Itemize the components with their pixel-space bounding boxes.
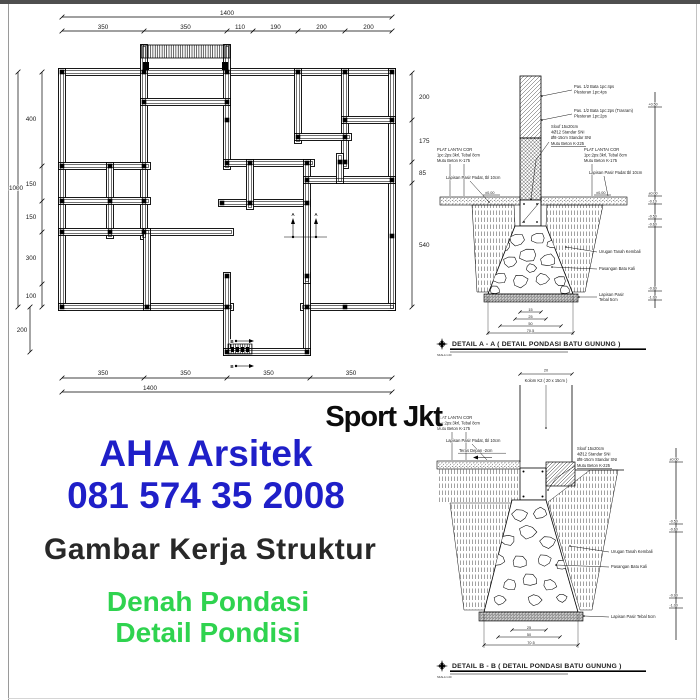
- foundation-plan-drawing: 1400350350110190200200100040015015030010…: [0, 0, 440, 420]
- elevation-label: -0.90: [670, 594, 678, 598]
- dim-label: 150: [26, 181, 37, 188]
- column-point: [305, 161, 310, 166]
- elevation-label: -0.50: [670, 520, 678, 524]
- floor-level-label: ±0.00: [596, 191, 605, 195]
- detail-label: Lapisan Pasir Padat, tbl 10cm: [446, 438, 501, 443]
- icon-star-h: [436, 665, 448, 667]
- column-point: [305, 350, 310, 355]
- column-point: [60, 199, 65, 204]
- dim-label: 350: [180, 24, 191, 31]
- watermark-text: Sport Jkt: [300, 401, 442, 434]
- detail-label: Urugan Tanah Kembali: [611, 549, 653, 554]
- detail-label: Mutu Beton K-175: [437, 426, 471, 431]
- beam-hatch: [546, 462, 575, 486]
- column-point: [225, 100, 230, 105]
- detail-label: PLAT LANTAI COR: [584, 147, 619, 152]
- dim-label: 25: [527, 626, 531, 630]
- column-point: [390, 118, 395, 123]
- porch-pier: [222, 62, 228, 70]
- column-point: [142, 70, 147, 75]
- product-line-1: Denah Pondasi: [53, 586, 363, 618]
- leader-dot: [578, 296, 580, 298]
- wall-segment: [59, 163, 151, 170]
- column-point: [225, 70, 230, 75]
- soil-hatch: [437, 469, 519, 503]
- column-point: [390, 234, 395, 239]
- detail-caption: DETAIL A - A ( DETAIL PONDASI BATU GUNUN…: [452, 341, 621, 348]
- stone: [531, 233, 544, 243]
- dim-label: 350: [180, 370, 191, 377]
- detail-label: Pas. 1/2 Bata 1pc:2ps (Trasram): [574, 108, 634, 113]
- detail-label: Teras Depan -2cm: [459, 448, 493, 453]
- product-line-2: Detail Pondisi: [53, 617, 363, 649]
- leader-dot: [523, 221, 525, 223]
- column-point: [145, 305, 150, 310]
- column-point: [343, 118, 348, 123]
- column-point: [142, 230, 147, 235]
- column-point: [220, 201, 225, 206]
- detail-label: 1pc:2ps:3krl, Tebal 8cm: [437, 153, 481, 158]
- column-point: [296, 70, 301, 75]
- column-point: [343, 305, 348, 310]
- leader-dot: [536, 203, 538, 205]
- elevation-label: -0.10: [649, 200, 657, 204]
- detail-label: Mutu Beton K-225: [551, 141, 585, 146]
- wall-segment: [389, 69, 396, 311]
- caption-marker compass-star-icon: [436, 338, 448, 350]
- leader-dot: [488, 201, 490, 203]
- detail-label: Mutu Beton K-225: [577, 463, 611, 468]
- dim-label: 400: [26, 116, 37, 123]
- detail-caption: DETAIL B - B ( DETAIL PONDASI BATU GUNUN…: [452, 663, 622, 670]
- section-label-b: B: [230, 364, 234, 369]
- caption-marker compass-star-icon: [436, 660, 448, 672]
- column-point: [296, 135, 301, 140]
- dim-label: 350: [98, 370, 109, 377]
- porch-hatch: [141, 45, 230, 58]
- column-point: [343, 160, 348, 165]
- leader-dot: [536, 221, 538, 223]
- dim-label: 190: [270, 24, 281, 31]
- phone-number: 081 574 35 2008: [28, 475, 384, 517]
- wall-segment: [304, 273, 311, 356]
- column-point: [305, 201, 310, 206]
- wall-segment: [337, 154, 344, 184]
- dim-label: 1400: [220, 10, 235, 17]
- detail-label: Pas. 1/2 Bata 1pc:4ps: [574, 84, 614, 89]
- leader-dot: [551, 266, 553, 268]
- leader-dot: [555, 564, 557, 566]
- column-point: [338, 160, 343, 165]
- dim-label: 15: [528, 308, 532, 312]
- leader-dot: [235, 365, 237, 367]
- wall-segment: [295, 69, 302, 144]
- section-label-a: A: [314, 212, 318, 217]
- leader-line: [584, 616, 609, 617]
- detail-b-drawing: 20Kolom K2 ( 20 x 15cm )PLAT LANTAI COR1…: [425, 365, 700, 695]
- column-point: [390, 70, 395, 75]
- column-point: [108, 199, 113, 204]
- wall-segment: [301, 304, 396, 311]
- column-point: [225, 161, 230, 166]
- step-mark: [246, 347, 249, 352]
- dim-label: 70,5: [527, 329, 534, 333]
- detail-label: 4Ø12 Standar SNI: [551, 130, 584, 135]
- detail-label: Plesteran 1pc:4ps: [574, 90, 607, 95]
- wall-segment: [141, 99, 231, 106]
- dim-label: 50: [528, 322, 532, 326]
- detail-label: Sloof 15x20cm: [577, 446, 605, 451]
- column-point: [60, 230, 65, 235]
- dim-label: 200: [316, 24, 327, 31]
- sand-layer: [484, 294, 578, 302]
- detail-label: Sloof 15x20cm: [551, 124, 579, 129]
- leader-dot: [565, 246, 567, 248]
- detail-label: Urugan Tanah Kembali: [599, 249, 641, 254]
- column-point: [60, 305, 65, 310]
- detail-label: Mutu Beton K-175: [584, 158, 618, 163]
- dim-label: 1000: [9, 185, 24, 192]
- elevation-label: ±0.00: [649, 192, 658, 196]
- detail-a-drawing: Pas. 1/2 Bata 1pc:4psPlesteran 1pc:4psPa…: [425, 30, 700, 365]
- step-mark: [236, 347, 239, 352]
- leader-dot: [547, 489, 549, 491]
- section-arrow-right-icon: [249, 339, 254, 343]
- leader-dot: [530, 198, 532, 200]
- detail-label: PLAT LANTAI COR: [437, 147, 472, 152]
- column-point: [343, 70, 348, 75]
- elevation-label: -1.00: [649, 296, 657, 300]
- wall-segment: [342, 117, 396, 124]
- floor-slab: [437, 461, 520, 469]
- detail-label: Lapisan Pasir Padat tbl 10cm: [589, 170, 643, 175]
- column-point: [60, 70, 65, 75]
- detail-label: Ø8-15cm Standar SNI: [577, 457, 617, 462]
- detail-label: Lapisan Pasir Padat, tbl 10cm: [446, 175, 501, 180]
- sheet-bottom-border: [8, 698, 697, 699]
- dim-label: 50: [527, 633, 531, 637]
- company-name: AHA Arsitek: [58, 433, 354, 475]
- sloof-section: [520, 468, 546, 500]
- elevation-label: -0.50: [649, 215, 657, 219]
- wall-brick-hatch: [520, 76, 541, 138]
- column-point: [225, 274, 230, 279]
- column-point: [142, 164, 147, 169]
- floor-slab: [440, 197, 520, 205]
- dim-label: 350: [263, 370, 274, 377]
- section-label-b: B: [230, 339, 234, 344]
- section-arrow-up-icon: [314, 218, 318, 224]
- leader-line: [542, 90, 572, 96]
- dim-label: 25: [528, 315, 532, 319]
- drawing-sheet: 1400350350110190200200100040015015030010…: [0, 0, 700, 700]
- dim-label: 150: [26, 214, 37, 221]
- wall-segment: [59, 198, 151, 205]
- leader-dot: [523, 203, 525, 205]
- step-mark: [231, 347, 234, 352]
- leader-dot: [541, 119, 543, 121]
- column-point: [225, 350, 230, 355]
- icon-star-h: [436, 343, 448, 345]
- stone: [513, 556, 526, 567]
- column-point: [305, 305, 310, 310]
- detail-label: Tebal 5cm: [599, 297, 618, 302]
- dim-label: 200: [17, 327, 28, 334]
- column-point: [248, 201, 253, 206]
- detail-label: 4Ø12 Standar SNI: [577, 452, 610, 457]
- leader-dot: [541, 95, 543, 97]
- wall-segment: [144, 229, 151, 311]
- column-point: [343, 135, 348, 140]
- leader-dot: [542, 471, 544, 473]
- column-point: [225, 305, 230, 310]
- scale-note: SKALA 1:20: [437, 675, 452, 679]
- leader-line: [542, 114, 572, 120]
- column-point: [108, 164, 113, 169]
- wall-segment: [224, 160, 315, 167]
- sand-layer: [479, 612, 583, 621]
- detail-label: 1pc:2ps:3krl, Tebal 8cm: [437, 421, 481, 426]
- dim-label: 1400: [143, 385, 158, 392]
- leader-dot: [583, 615, 585, 617]
- detail-label: 1pc:2ps:3krl, Tebal 8cm: [584, 153, 628, 158]
- column-point: [390, 178, 395, 183]
- dim-label: 110: [235, 24, 246, 31]
- leader-dot: [545, 427, 547, 429]
- porch-pier: [143, 62, 149, 70]
- floor-slab: [541, 197, 627, 205]
- elevation-label: -1.00: [670, 604, 678, 608]
- column-point: [142, 100, 147, 105]
- column-point: [305, 178, 310, 183]
- dim-label: 350: [346, 370, 357, 377]
- step-mark: [241, 347, 244, 352]
- section-label-a: A: [291, 212, 295, 217]
- arrow-left-icon: [473, 456, 478, 460]
- scale-note: SKALA 1:20: [437, 353, 452, 357]
- stone: [557, 560, 567, 569]
- section-arrow-right-icon: [249, 364, 254, 368]
- elevation-label: +0.50: [649, 103, 658, 107]
- column-point: [108, 230, 113, 235]
- detail-label: Kolom K2 ( 20 x 15cm ): [525, 378, 568, 383]
- detail-label: Pasangan Batu Kali: [599, 266, 635, 271]
- column-point: [142, 199, 147, 204]
- wall-trasram-hatch: [520, 138, 541, 200]
- column-point: [60, 164, 65, 169]
- dim-label: 70,5: [527, 641, 534, 645]
- elevation-label: -0.60: [670, 528, 678, 532]
- column-point: [305, 274, 310, 279]
- dim-label: 100: [26, 293, 37, 300]
- elevation-label: -0.60: [649, 223, 657, 227]
- leader-dot: [523, 471, 525, 473]
- dim-label: 300: [26, 255, 37, 262]
- leader-dot: [235, 340, 237, 342]
- elevation-label: -0.90: [649, 287, 657, 291]
- dim-label: 20: [544, 369, 548, 373]
- leader-dot: [569, 545, 571, 547]
- column-point: [248, 161, 253, 166]
- wall-segment: [219, 200, 311, 207]
- dim-label: 350: [98, 24, 109, 31]
- leader-dot: [542, 496, 544, 498]
- detail-label: Lapisan Pasir Tebal 5cm: [611, 614, 656, 619]
- section-arrow-up-icon: [291, 218, 295, 224]
- detail-label: PLAT LANTAI COR: [437, 415, 472, 420]
- dim-label: 200: [363, 24, 374, 31]
- wall-segment: [59, 69, 66, 311]
- floor-level-label: ±0.00: [485, 191, 494, 195]
- detail-label: Mutu Beton K-175: [437, 158, 471, 163]
- leader-dot: [523, 496, 525, 498]
- subtitle-text: Gambar Kerja Struktur: [44, 533, 370, 567]
- detail-label: Ø8-15cm Standar SNI: [551, 135, 591, 140]
- wall-segment: [304, 177, 396, 184]
- elevation-label: ±0.00: [670, 458, 679, 462]
- column-point: [225, 118, 230, 123]
- detail-label: Plesteran 1pc:2ps: [574, 114, 607, 119]
- detail-label: Pasangan Batu Kali: [611, 564, 647, 569]
